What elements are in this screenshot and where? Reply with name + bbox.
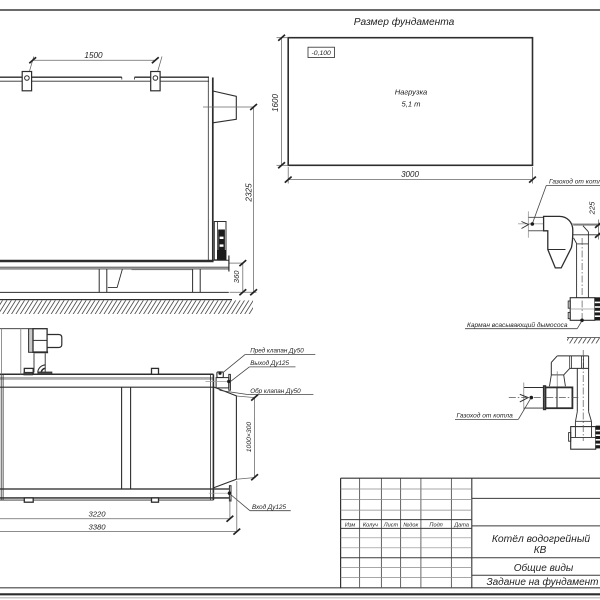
svg-text:Колуч: Колуч (363, 523, 378, 529)
svg-text:№док: №док (403, 523, 418, 529)
svg-text:Лист: Лист (383, 523, 399, 529)
svg-text:1600: 1600 (271, 94, 280, 112)
svg-text:Задание на фундамент: Задание на фундамент (486, 576, 598, 588)
svg-text:Дата: Дата (453, 523, 469, 529)
svg-text:Котёл водогрейный: Котёл водогрейный (492, 534, 591, 545)
svg-text:Размер фундамента: Размер фундамента (354, 16, 455, 28)
svg-text:1000×300: 1000×300 (246, 422, 253, 453)
svg-text:Общие виды: Общие виды (514, 562, 574, 574)
svg-text:Обр клапан Ду50: Обр клапан Ду50 (250, 387, 301, 395)
svg-text:225: 225 (588, 201, 597, 215)
svg-text:-0,100: -0,100 (312, 50, 331, 57)
svg-text:5,1 т: 5,1 т (402, 99, 421, 108)
svg-text:Вход Ду125: Вход Ду125 (252, 503, 286, 511)
svg-text:Подп: Подп (429, 523, 442, 529)
svg-text:КВ: КВ (534, 545, 547, 556)
svg-text:Нагрузка: Нагрузка (395, 88, 428, 97)
svg-text:Газоход от котла: Газоход от котла (549, 178, 600, 186)
svg-text:3220: 3220 (88, 509, 106, 518)
svg-text:Выход Ду125: Выход Ду125 (250, 359, 289, 367)
svg-text:Изм: Изм (345, 523, 356, 529)
svg-text:Карман всасывающий дымососа: Карман всасывающий дымососа (467, 321, 568, 329)
svg-text:1500: 1500 (84, 51, 103, 60)
svg-text:Пред клапан Ду50: Пред клапан Ду50 (250, 347, 304, 355)
svg-text:2325: 2325 (245, 183, 254, 203)
svg-text:3000: 3000 (401, 170, 419, 179)
svg-text:360: 360 (232, 270, 241, 283)
svg-text:3380: 3380 (88, 523, 106, 532)
svg-text:Газоход от котла: Газоход от котла (457, 412, 514, 420)
